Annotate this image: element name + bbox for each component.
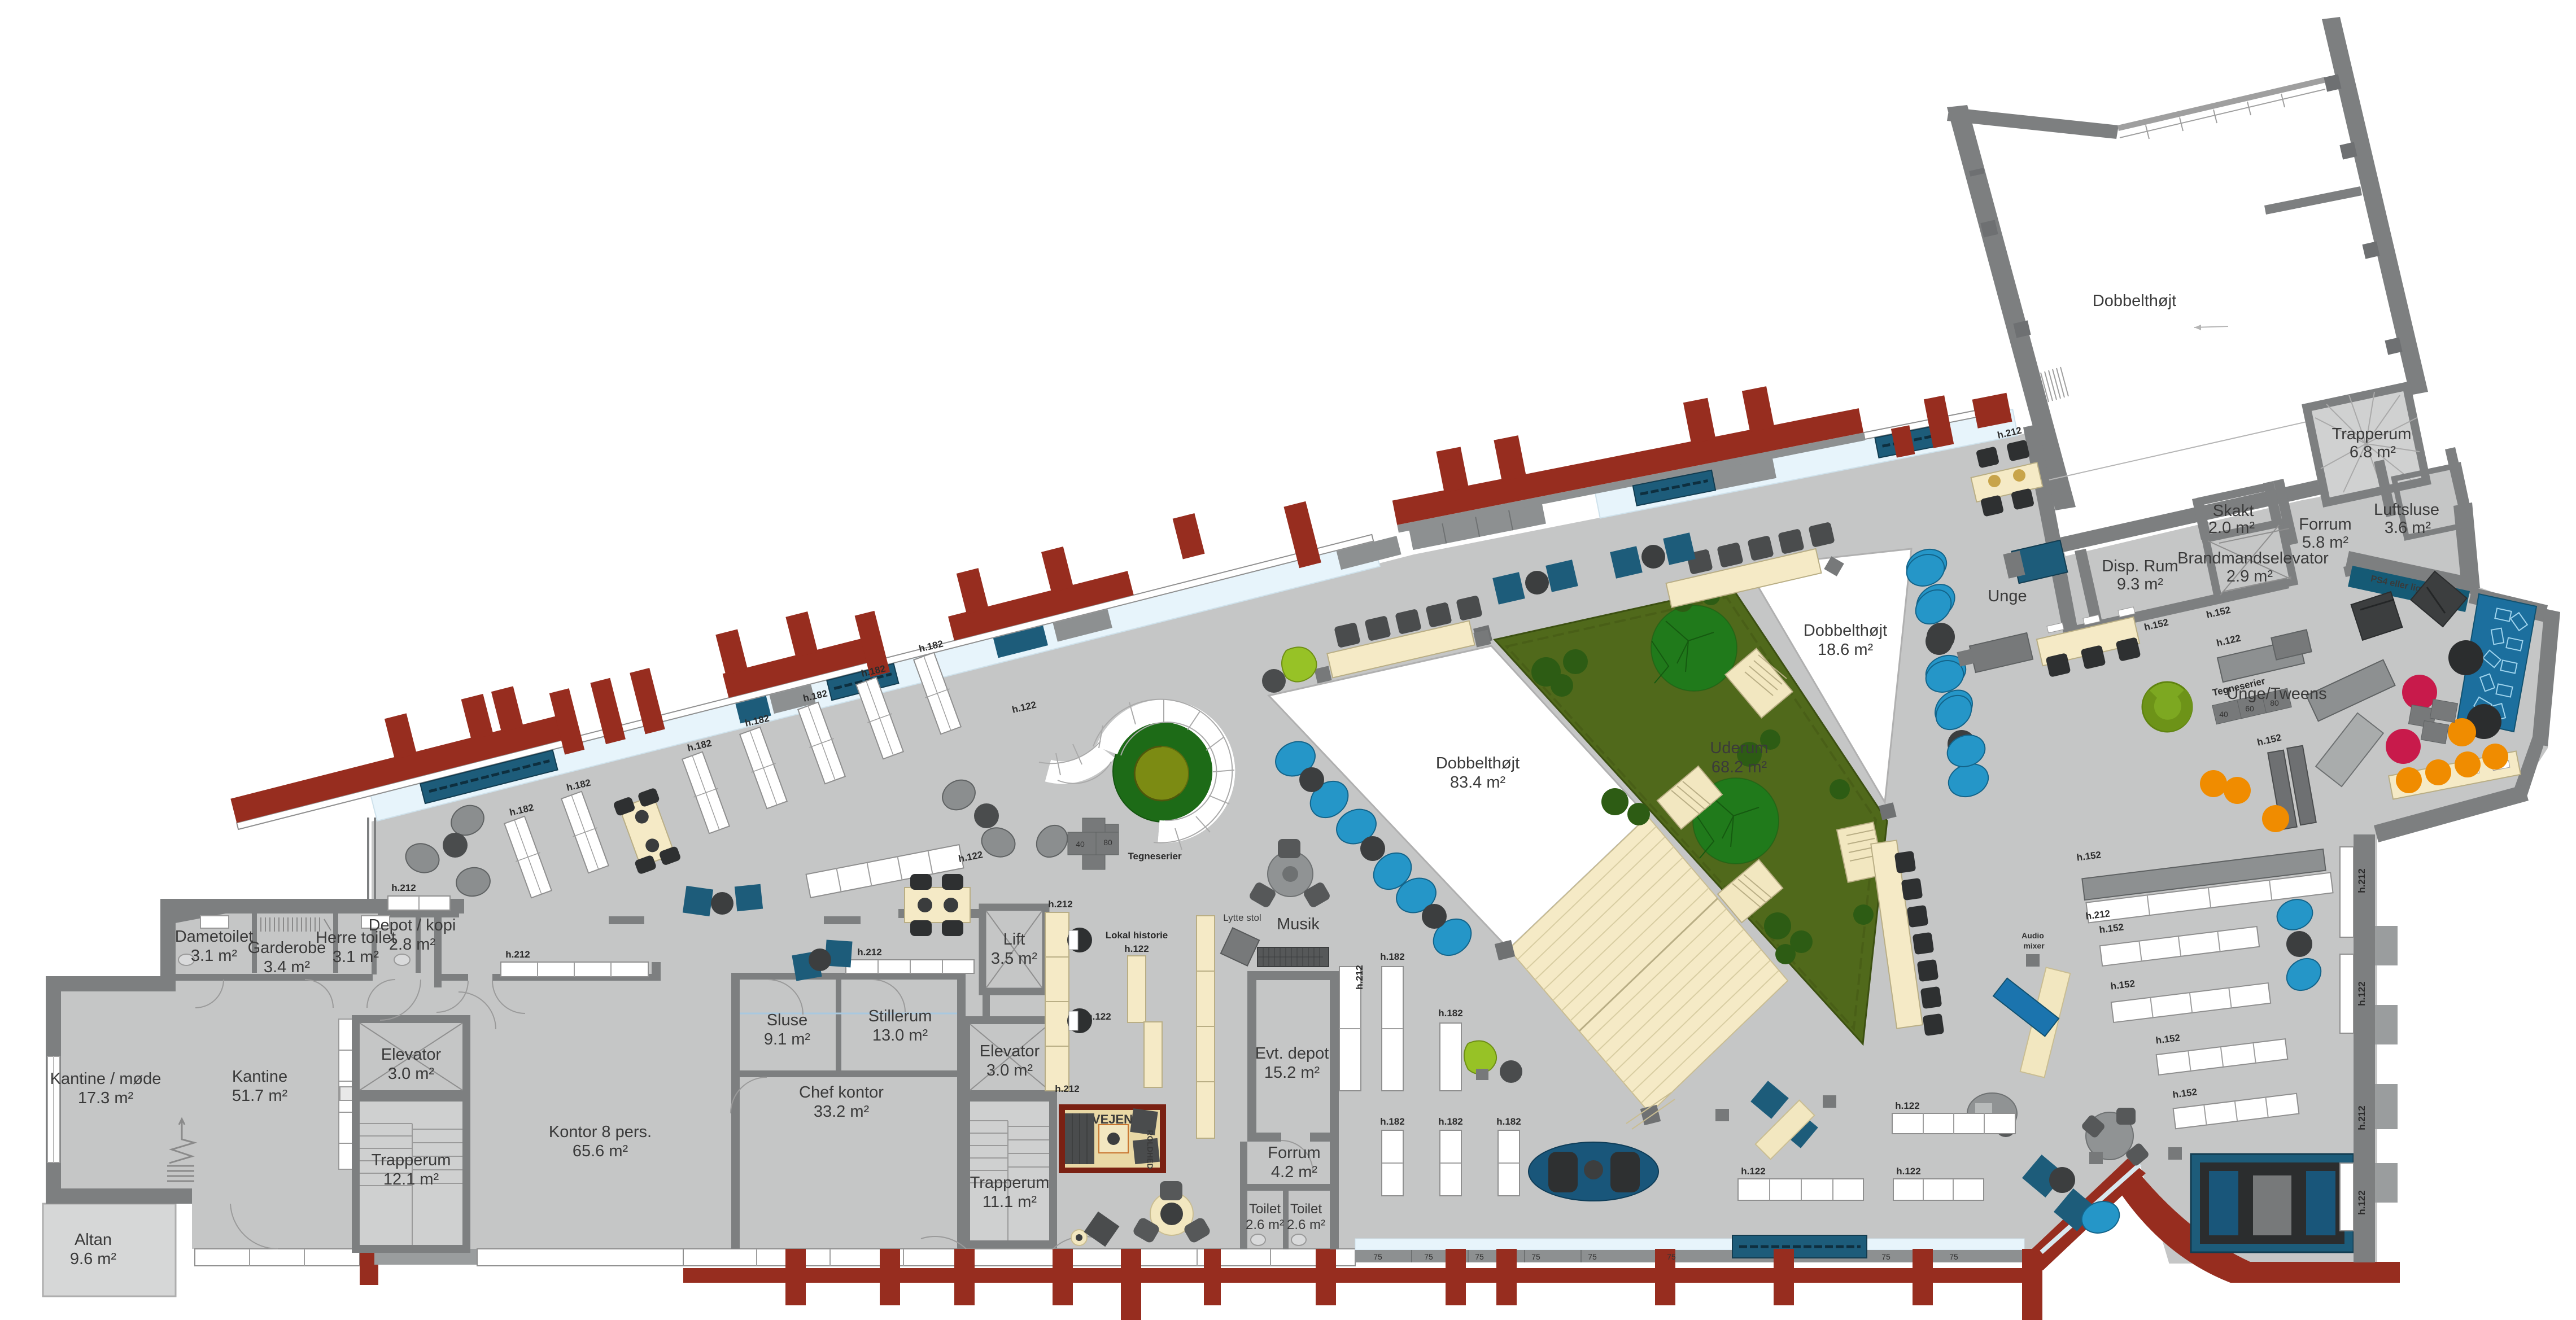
svg-text:68.2 m²: 68.2 m² — [1711, 758, 1767, 776]
svg-text:h.212: h.212 — [857, 947, 881, 958]
svg-text:h.212: h.212 — [1354, 965, 1365, 989]
svg-text:h.182: h.182 — [1380, 951, 1404, 962]
svg-text:ROLDHED: ROLDHED — [1146, 1130, 1155, 1169]
svg-text:75: 75 — [1475, 1252, 1484, 1261]
svg-text:40: 40 — [2219, 710, 2228, 719]
svg-text:60: 60 — [2245, 704, 2254, 713]
svg-text:Sluse: Sluse — [767, 1011, 808, 1029]
svg-text:3.4 m²: 3.4 m² — [264, 958, 311, 976]
svg-text:13.0 m²: 13.0 m² — [872, 1026, 928, 1044]
svg-text:2.9 m²: 2.9 m² — [2226, 567, 2273, 585]
svg-text:Lift: Lift — [1003, 930, 1025, 949]
svg-text:Disp. Rum: Disp. Rum — [2102, 557, 2178, 575]
svg-text:h.182: h.182 — [1496, 1116, 1521, 1127]
svg-text:h.122: h.122 — [2356, 1190, 2367, 1214]
svg-text:Trapperum: Trapperum — [970, 1174, 1050, 1192]
svg-text:65.6 m²: 65.6 m² — [573, 1142, 628, 1160]
svg-text:h.122: h.122 — [1895, 1100, 1919, 1111]
svg-text:Trapperum: Trapperum — [2332, 425, 2412, 443]
svg-text:Forrum: Forrum — [2299, 515, 2351, 534]
svg-text:Elevator: Elevator — [980, 1042, 1040, 1060]
svg-text:9.1 m²: 9.1 m² — [764, 1030, 811, 1048]
svg-text:75: 75 — [1881, 1252, 1890, 1261]
svg-text:h.212: h.212 — [505, 949, 530, 960]
svg-text:Unge/Tweens: Unge/Tweens — [2226, 685, 2326, 703]
svg-text:h.122: h.122 — [1896, 1166, 1920, 1177]
svg-text:h.212: h.212 — [1055, 1083, 1079, 1094]
svg-text:75: 75 — [1949, 1252, 1958, 1261]
svg-text:Dobbelthøjt: Dobbelthøjt — [1804, 622, 1887, 640]
svg-text:Forrum: Forrum — [1268, 1144, 1320, 1162]
svg-text:Elevator: Elevator — [381, 1046, 442, 1064]
svg-text:4.2 m²: 4.2 m² — [1271, 1163, 1318, 1181]
svg-text:75: 75 — [1531, 1252, 1540, 1261]
svg-text:3.6 m²: 3.6 m² — [2385, 519, 2431, 537]
svg-text:Audio: Audio — [2021, 931, 2044, 940]
svg-text:Skakt: Skakt — [2213, 502, 2254, 520]
svg-text:12.1 m²: 12.1 m² — [383, 1170, 439, 1188]
svg-text:Brandmandselevator: Brandmandselevator — [2177, 549, 2329, 567]
svg-text:h.182: h.182 — [1438, 1008, 1462, 1019]
svg-text:3.1 m²: 3.1 m² — [191, 947, 238, 965]
svg-text:h.122: h.122 — [1741, 1166, 1765, 1177]
svg-text:2.6 m²: 2.6 m² — [1246, 1217, 1284, 1232]
svg-text:9.6 m²: 9.6 m² — [70, 1250, 117, 1268]
svg-text:h.122: h.122 — [1124, 943, 1149, 954]
svg-text:Garderobe: Garderobe — [248, 939, 326, 957]
svg-text:Tegneserier: Tegneserier — [1128, 851, 1182, 862]
svg-text:Altan: Altan — [75, 1231, 112, 1249]
svg-text:11.1 m²: 11.1 m² — [983, 1193, 1037, 1211]
svg-text:51.7 m²: 51.7 m² — [232, 1087, 288, 1105]
svg-text:18.6 m²: 18.6 m² — [1818, 641, 1874, 659]
svg-text:Dobbelthøjt: Dobbelthøjt — [2093, 292, 2176, 310]
svg-text:Toilet: Toilet — [1249, 1201, 1281, 1217]
svg-text:mixer: mixer — [2023, 941, 2045, 950]
svg-text:h.182: h.182 — [1438, 1116, 1462, 1127]
svg-text:75: 75 — [1588, 1252, 1597, 1261]
svg-text:Uderum: Uderum — [1710, 739, 1768, 757]
svg-text:3.1 m²: 3.1 m² — [333, 948, 379, 966]
svg-text:2.6 m²: 2.6 m² — [1287, 1217, 1325, 1232]
svg-text:6.8 m²: 6.8 m² — [2350, 443, 2396, 461]
svg-text:3.0 m²: 3.0 m² — [388, 1065, 435, 1083]
svg-text:h.182: h.182 — [1380, 1116, 1404, 1127]
svg-text:Lytte stol: Lytte stol — [1223, 912, 1261, 923]
svg-text:Dobbelthøjt: Dobbelthøjt — [1436, 754, 1520, 772]
svg-text:75: 75 — [1373, 1252, 1382, 1261]
svg-text:Kontor 8 pers.: Kontor 8 pers. — [549, 1123, 652, 1141]
svg-text:Stillerum: Stillerum — [868, 1007, 932, 1025]
svg-text:Depot / kopi: Depot / kopi — [369, 916, 456, 934]
svg-text:Trapperum: Trapperum — [372, 1151, 451, 1169]
svg-text:9.3 m²: 9.3 m² — [2117, 575, 2164, 593]
svg-text:80: 80 — [1103, 838, 1112, 847]
svg-text:Luftsluse: Luftsluse — [2374, 501, 2439, 519]
svg-text:h.122: h.122 — [2356, 981, 2367, 1006]
svg-text:h.212: h.212 — [2356, 868, 2367, 893]
svg-text:Toilet: Toilet — [1290, 1201, 1322, 1217]
svg-text:75: 75 — [1667, 1252, 1676, 1261]
svg-text:Kantine / møde: Kantine / møde — [50, 1070, 161, 1088]
svg-text:Chef kontor: Chef kontor — [799, 1083, 884, 1102]
svg-text:Unge: Unge — [1988, 587, 2027, 605]
svg-text:83.4 m²: 83.4 m² — [1450, 773, 1506, 792]
svg-text:Kantine: Kantine — [232, 1068, 287, 1086]
svg-text:2.8 m²: 2.8 m² — [389, 936, 436, 954]
svg-text:Musik: Musik — [1277, 915, 1320, 933]
svg-text:Lokal historie: Lokal historie — [1106, 930, 1168, 941]
svg-text:h.212: h.212 — [1048, 899, 1072, 910]
svg-text:17.3 m²: 17.3 m² — [78, 1089, 134, 1107]
svg-text:40: 40 — [1076, 840, 1085, 849]
svg-text:3.0 m²: 3.0 m² — [986, 1061, 1033, 1079]
svg-text:3.5 m²: 3.5 m² — [991, 950, 1038, 968]
svg-text:Evt. depot: Evt. depot — [1255, 1044, 1329, 1063]
svg-text:2.0 m²: 2.0 m² — [2208, 519, 2255, 537]
svg-text:75: 75 — [1424, 1252, 1433, 1261]
svg-text:15.2 m²: 15.2 m² — [1264, 1064, 1320, 1082]
svg-text:h.212: h.212 — [2356, 1105, 2367, 1130]
svg-text:h.212: h.212 — [391, 882, 416, 893]
svg-text:Dametoilet: Dametoilet — [175, 928, 254, 946]
svg-text:33.2 m²: 33.2 m² — [814, 1103, 870, 1121]
